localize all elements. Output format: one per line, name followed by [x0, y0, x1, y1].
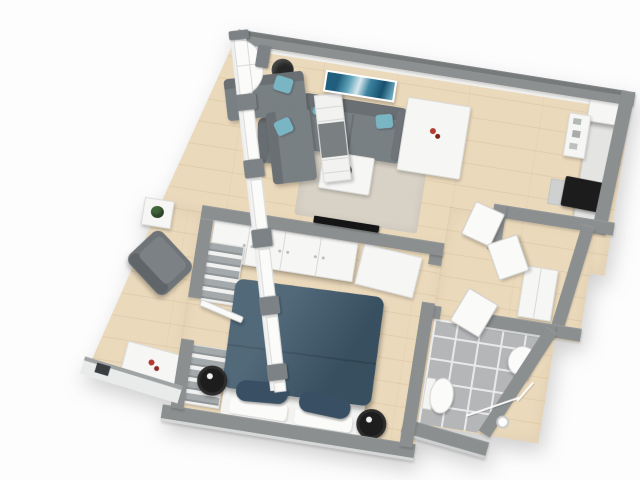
curtain — [228, 29, 249, 40]
wardrobe-handle — [278, 249, 281, 252]
small-appliance — [569, 143, 578, 150]
curtain — [259, 296, 281, 316]
dining-table — [396, 97, 471, 180]
wardrobe-handle — [314, 255, 317, 258]
wardrobe-handle — [286, 251, 289, 254]
curtain — [243, 158, 265, 178]
red-decor — [154, 365, 160, 371]
apartment-plan — [65, 0, 640, 480]
red-decor — [148, 359, 155, 366]
curtain — [236, 93, 258, 111]
small-appliance — [572, 130, 581, 138]
throw-pillow — [375, 114, 393, 129]
side-table — [141, 197, 175, 229]
wardrobe-seam — [533, 269, 542, 319]
small-appliance — [573, 118, 582, 125]
plant — [150, 205, 165, 219]
curtain — [266, 363, 288, 381]
floorplan-canvas — [0, 0, 640, 480]
red-centerpiece — [435, 134, 441, 140]
curtain — [251, 228, 273, 248]
wardrobe-handle — [322, 256, 325, 259]
shelf-unit-gray-top — [318, 121, 348, 158]
window — [273, 381, 286, 392]
